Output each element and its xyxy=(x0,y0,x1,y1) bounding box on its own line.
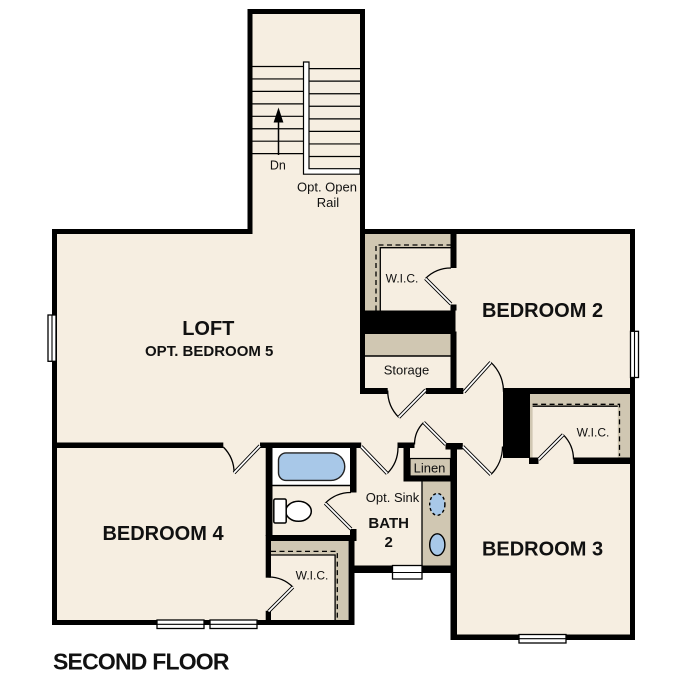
svg-text:BEDROOM 2: BEDROOM 2 xyxy=(482,300,603,322)
svg-text:Linen: Linen xyxy=(414,461,446,476)
svg-text:Dn: Dn xyxy=(270,159,286,173)
svg-text:W.I.C.: W.I.C. xyxy=(296,569,329,583)
svg-text:Rail: Rail xyxy=(317,195,340,210)
svg-text:SECOND FLOOR: SECOND FLOOR xyxy=(53,649,230,675)
svg-text:W.I.C.: W.I.C. xyxy=(386,272,419,286)
svg-text:BEDROOM 3: BEDROOM 3 xyxy=(482,539,603,561)
svg-text:Opt. Open: Opt. Open xyxy=(297,180,357,195)
svg-text:Opt. Sink: Opt. Sink xyxy=(366,490,420,505)
svg-text:W.I.C.: W.I.C. xyxy=(577,426,610,440)
svg-text:Storage: Storage xyxy=(384,363,430,378)
svg-text:BEDROOM 4: BEDROOM 4 xyxy=(102,523,224,545)
svg-text:OPT. BEDROOM 5: OPT. BEDROOM 5 xyxy=(145,343,273,360)
svg-text:BATH: BATH xyxy=(368,515,409,532)
svg-text:2: 2 xyxy=(385,534,393,551)
svg-text:LOFT: LOFT xyxy=(182,318,234,340)
